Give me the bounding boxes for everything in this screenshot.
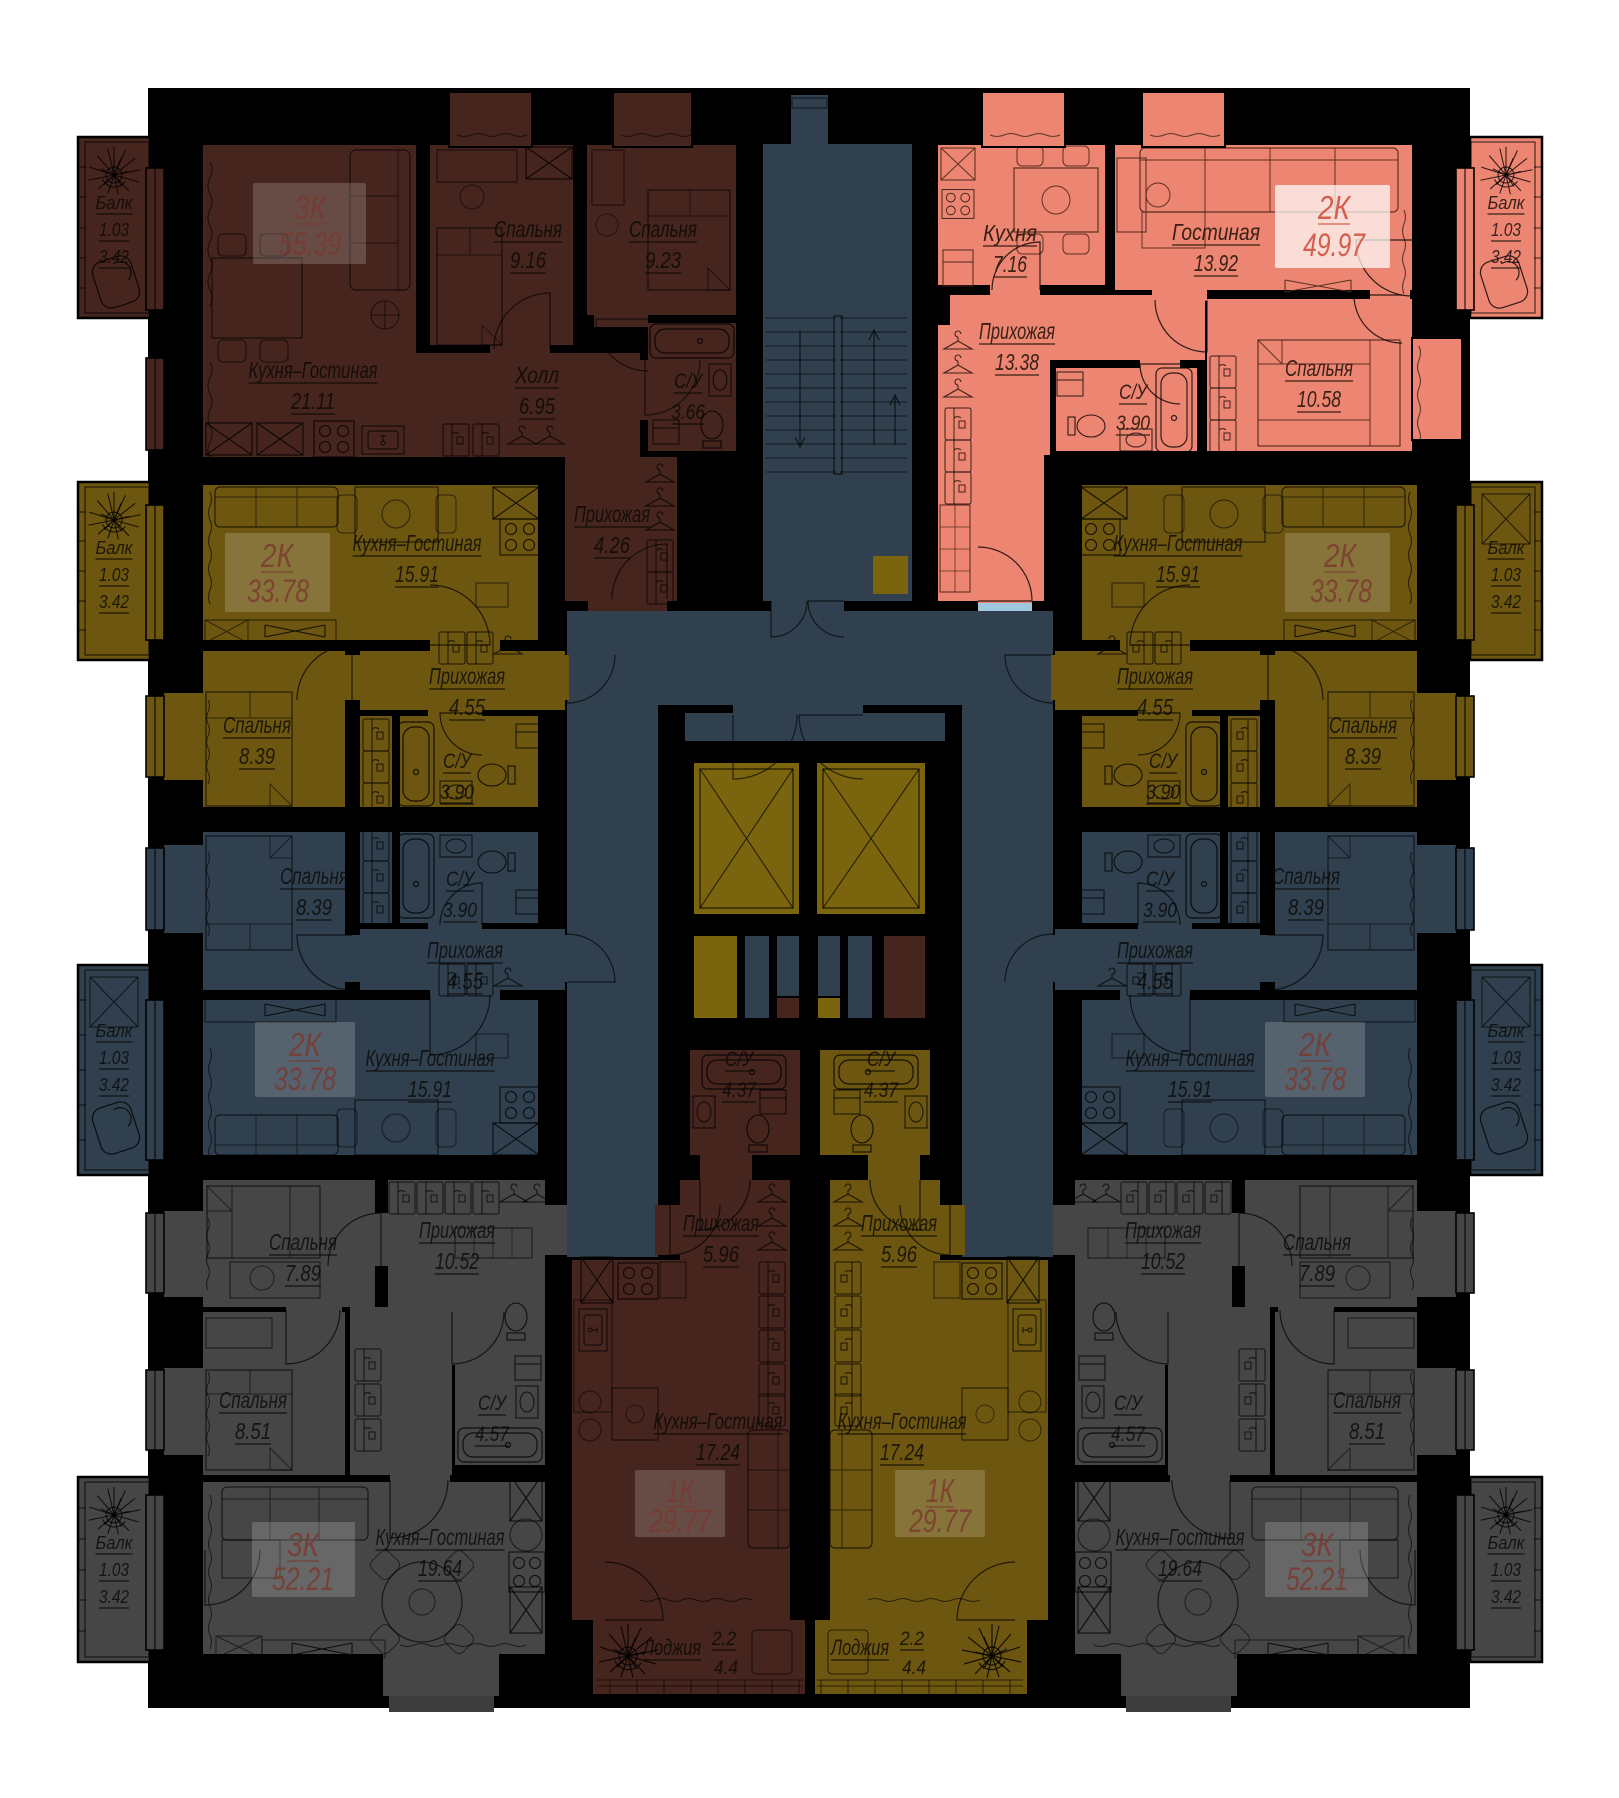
- svg-text:Гостиная: Гостиная: [1172, 219, 1260, 245]
- svg-text:33.78: 33.78: [274, 1061, 336, 1097]
- svg-text:1.03: 1.03: [99, 565, 129, 585]
- svg-text:2К: 2К: [1323, 537, 1357, 574]
- svg-text:Балк: Балк: [96, 1533, 134, 1553]
- svg-text:Спальня: Спальня: [1329, 712, 1397, 738]
- svg-text:3К: 3К: [294, 189, 327, 226]
- svg-text:52.21: 52.21: [272, 1561, 334, 1597]
- svg-text:Холл: Холл: [514, 362, 559, 388]
- svg-text:Спальня: Спальня: [1285, 355, 1353, 381]
- svg-text:Спальня: Спальня: [269, 1229, 337, 1255]
- svg-text:Кухня–Гостиная: Кухня–Гостиная: [1114, 530, 1243, 556]
- svg-text:7.16: 7.16: [993, 251, 1027, 277]
- svg-text:8.39: 8.39: [296, 894, 332, 920]
- svg-text:17.24: 17.24: [880, 1439, 924, 1465]
- svg-text:3.42: 3.42: [1491, 1587, 1521, 1607]
- svg-text:5.96: 5.96: [703, 1241, 739, 1267]
- svg-text:13.38: 13.38: [995, 349, 1039, 375]
- svg-text:1.03: 1.03: [99, 1560, 129, 1580]
- svg-text:Лоджия: Лоджия: [642, 1635, 702, 1660]
- svg-text:9.23: 9.23: [645, 247, 681, 273]
- svg-text:7.89: 7.89: [1299, 1260, 1335, 1286]
- svg-text:10.52: 10.52: [435, 1248, 479, 1274]
- svg-text:7.89: 7.89: [285, 1260, 321, 1286]
- svg-text:Кухня–Гостиная: Кухня–Гостиная: [1116, 1524, 1245, 1550]
- svg-text:Кухня–Гостиная: Кухня–Гостиная: [838, 1408, 967, 1434]
- svg-text:Балк: Балк: [1488, 1533, 1526, 1553]
- svg-text:Спальня: Спальня: [494, 216, 562, 242]
- svg-text:Кухня: Кухня: [983, 220, 1037, 246]
- svg-text:6.95: 6.95: [519, 393, 555, 419]
- svg-text:15.91: 15.91: [1156, 561, 1200, 587]
- svg-text:Прихожая: Прихожая: [429, 663, 505, 689]
- svg-text:С/У: С/У: [1146, 868, 1176, 891]
- svg-text:10.52: 10.52: [1141, 1248, 1185, 1274]
- svg-text:С/У: С/У: [1114, 1392, 1144, 1415]
- svg-text:19.64: 19.64: [1158, 1555, 1202, 1581]
- svg-text:Прихожая: Прихожая: [1125, 1217, 1201, 1243]
- svg-text:С/У: С/У: [446, 868, 476, 891]
- svg-text:3.90: 3.90: [440, 781, 474, 804]
- svg-text:Спальня: Спальня: [1283, 1229, 1351, 1255]
- svg-text:52.21: 52.21: [1286, 1561, 1348, 1597]
- svg-text:Прихожая: Прихожая: [861, 1210, 937, 1236]
- svg-text:3К: 3К: [287, 1526, 320, 1563]
- svg-text:С/У: С/У: [867, 1048, 897, 1071]
- svg-text:1.03: 1.03: [1491, 1560, 1521, 1580]
- svg-text:Прихожая: Прихожая: [574, 501, 650, 527]
- svg-text:Кухня–Гостиная: Кухня–Гостиная: [249, 357, 378, 383]
- svg-text:8.39: 8.39: [239, 743, 275, 769]
- svg-text:4.4: 4.4: [902, 1658, 926, 1679]
- svg-text:13.92: 13.92: [1194, 250, 1238, 276]
- svg-text:3.90: 3.90: [1143, 899, 1177, 922]
- svg-text:5.96: 5.96: [881, 1241, 917, 1267]
- svg-text:55.39: 55.39: [279, 226, 341, 262]
- svg-text:3.42: 3.42: [99, 592, 129, 612]
- svg-text:С/У: С/У: [478, 1392, 508, 1415]
- svg-text:4.26: 4.26: [594, 532, 630, 558]
- svg-text:С/У: С/У: [674, 370, 704, 393]
- svg-text:29.77: 29.77: [648, 1503, 712, 1539]
- svg-text:Балк: Балк: [96, 193, 134, 213]
- svg-text:4.57: 4.57: [1111, 1423, 1146, 1446]
- svg-text:3.42: 3.42: [1491, 247, 1521, 267]
- svg-text:33.78: 33.78: [247, 573, 309, 609]
- svg-text:2.2: 2.2: [711, 1629, 736, 1650]
- svg-text:2К: 2К: [260, 537, 294, 574]
- svg-text:Спальня: Спальня: [1272, 863, 1340, 889]
- svg-text:19.64: 19.64: [418, 1555, 462, 1581]
- svg-text:Спальня: Спальня: [219, 1387, 287, 1413]
- svg-text:С/У: С/У: [1149, 750, 1179, 773]
- svg-text:Спальня: Спальня: [223, 712, 291, 738]
- svg-text:Балк: Балк: [96, 1021, 134, 1041]
- svg-text:33.78: 33.78: [1284, 1061, 1346, 1097]
- svg-text:29.77: 29.77: [908, 1503, 972, 1539]
- svg-text:С/У: С/У: [443, 750, 473, 773]
- svg-text:3.66: 3.66: [671, 401, 705, 424]
- svg-text:21.11: 21.11: [290, 388, 335, 414]
- svg-text:Балк: Балк: [1488, 1021, 1526, 1041]
- svg-text:8.39: 8.39: [1345, 743, 1381, 769]
- svg-text:3.42: 3.42: [1491, 592, 1521, 612]
- svg-text:С/У: С/У: [725, 1048, 755, 1071]
- svg-text:1.03: 1.03: [1491, 565, 1521, 585]
- svg-text:Кухня–Гостиная: Кухня–Гостиная: [1126, 1045, 1255, 1071]
- svg-text:4.55: 4.55: [1137, 694, 1173, 720]
- svg-text:Прихожая: Прихожая: [1117, 937, 1193, 963]
- svg-text:4.37: 4.37: [722, 1079, 757, 1102]
- svg-text:3.42: 3.42: [99, 1075, 129, 1095]
- svg-text:1.03: 1.03: [1491, 1048, 1521, 1068]
- svg-text:Кухня–Гостиная: Кухня–Гостиная: [654, 1408, 783, 1434]
- svg-text:17.24: 17.24: [696, 1439, 740, 1465]
- svg-text:Спальня: Спальня: [1333, 1387, 1401, 1413]
- svg-text:1.03: 1.03: [99, 1048, 129, 1068]
- svg-text:4.55: 4.55: [449, 694, 485, 720]
- svg-text:8.39: 8.39: [1288, 894, 1324, 920]
- svg-text:10.58: 10.58: [1297, 386, 1341, 412]
- svg-text:3.90: 3.90: [1116, 412, 1150, 435]
- svg-text:2К: 2К: [288, 1026, 322, 1063]
- svg-text:1.03: 1.03: [99, 220, 129, 240]
- svg-text:8.51: 8.51: [235, 1418, 271, 1444]
- svg-text:4.55: 4.55: [447, 968, 483, 994]
- svg-text:2К: 2К: [1298, 1026, 1332, 1063]
- svg-text:33.78: 33.78: [1310, 573, 1372, 609]
- svg-text:2К: 2К: [1317, 189, 1351, 226]
- svg-text:4.37: 4.37: [864, 1079, 899, 1102]
- svg-text:Балк: Балк: [1488, 193, 1526, 213]
- svg-text:Лоджия: Лоджия: [830, 1635, 890, 1660]
- svg-text:Прихожая: Прихожая: [419, 1217, 495, 1243]
- svg-text:Кухня–Гостиная: Кухня–Гостиная: [353, 530, 482, 556]
- svg-text:С/У: С/У: [1119, 381, 1149, 404]
- svg-text:8.51: 8.51: [1349, 1418, 1385, 1444]
- svg-text:4.55: 4.55: [1137, 968, 1173, 994]
- svg-text:1.03: 1.03: [1491, 220, 1521, 240]
- svg-text:3.90: 3.90: [443, 899, 477, 922]
- svg-text:3.90: 3.90: [1146, 781, 1180, 804]
- svg-text:Балк: Балк: [1488, 538, 1526, 558]
- svg-text:4.4: 4.4: [714, 1658, 738, 1679]
- svg-text:Балк: Балк: [96, 538, 134, 558]
- svg-text:3.42: 3.42: [99, 247, 129, 267]
- svg-text:15.91: 15.91: [395, 561, 439, 587]
- svg-text:Кухня–Гостиная: Кухня–Гостиная: [366, 1045, 495, 1071]
- svg-text:49.97: 49.97: [1303, 227, 1366, 263]
- svg-text:2.2: 2.2: [899, 1629, 924, 1650]
- svg-text:3К: 3К: [1301, 1526, 1334, 1563]
- svg-text:Спальня: Спальня: [629, 216, 697, 242]
- svg-text:9.16: 9.16: [510, 247, 546, 273]
- svg-text:Прихожая: Прихожая: [1117, 663, 1193, 689]
- svg-text:Прихожая: Прихожая: [979, 318, 1055, 344]
- svg-text:Прихожая: Прихожая: [427, 937, 503, 963]
- svg-text:3.42: 3.42: [99, 1587, 129, 1607]
- svg-text:15.91: 15.91: [408, 1076, 452, 1102]
- svg-text:Прихожая: Прихожая: [683, 1210, 759, 1236]
- svg-text:Спальня: Спальня: [280, 863, 348, 889]
- svg-text:3.42: 3.42: [1491, 1075, 1521, 1095]
- svg-text:15.91: 15.91: [1168, 1076, 1212, 1102]
- svg-text:4.57: 4.57: [475, 1423, 510, 1446]
- svg-text:Кухня–Гостиная: Кухня–Гостиная: [376, 1524, 505, 1550]
